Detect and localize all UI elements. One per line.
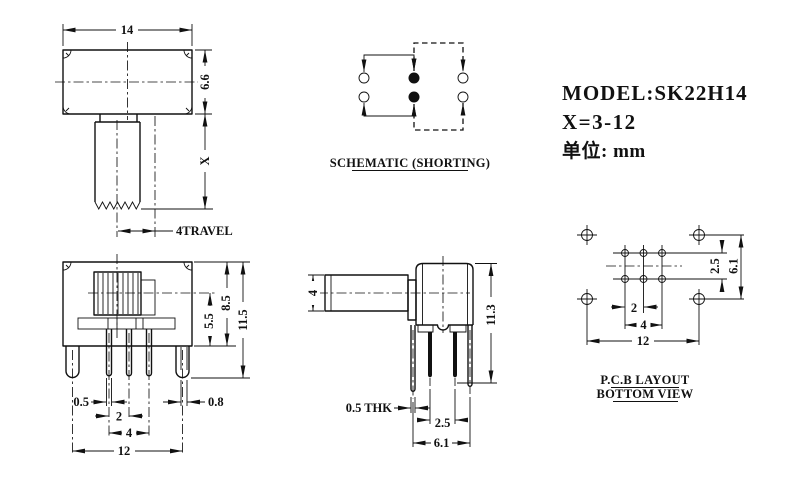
dim-label-travel: 4TRAVEL <box>176 224 233 238</box>
pcb-caption-line1: P.C.B LAYOUT <box>600 373 690 387</box>
dim-label-col-pitch: 2 <box>631 301 637 315</box>
dim-label-knob: 4 <box>306 289 320 296</box>
terminal-pin-side <box>428 332 432 377</box>
dim-label-width: 14 <box>121 23 134 37</box>
front-view: 5.5 8.5 11.5 0.5 0.8 2 4 12 <box>63 254 251 458</box>
pcb-layout-view: 2.5 6.1 2 4 12 P.C.B LAYOUT BOTTOM VIEW <box>577 225 744 402</box>
crosshair <box>577 289 597 345</box>
dim-label-total-h: 11.3 <box>484 304 498 325</box>
top-view: 14 6.6 X 4TRAVEL <box>55 23 233 238</box>
terminal-common <box>409 73 420 84</box>
bottom-tabs <box>418 325 466 332</box>
title-block: MODEL:SK22H14 X=3-12 单位: mm <box>562 81 748 162</box>
crosshair <box>577 225 597 245</box>
x-range: X=3-12 <box>562 110 637 134</box>
dim-label-depth: 6.6 <box>198 74 212 90</box>
dim-label-pin-pitch: 2 <box>116 410 122 424</box>
extension-line <box>181 380 187 406</box>
terminal-common <box>409 92 420 103</box>
contact-link-line <box>364 103 414 116</box>
unit-label: 单位: mm <box>562 139 646 162</box>
corner-mark <box>184 50 192 58</box>
actuator-stem <box>95 114 140 202</box>
knob <box>94 272 141 315</box>
corner-mark <box>63 106 71 114</box>
dim-label-pin-thk: 0.5 <box>73 395 89 409</box>
dim-label-lower-h: 5.5 <box>202 313 216 329</box>
technical-drawing: 14 6.6 X 4TRAVEL SCHEMATIC (SHORTING) MO… <box>0 0 800 480</box>
terminal-pin-side <box>453 332 457 377</box>
corner-mark <box>184 106 192 114</box>
mount-leg-inner <box>181 347 187 370</box>
dim-label-row-span: 6.1 <box>727 258 741 274</box>
corner-mark <box>63 262 71 270</box>
model-number: MODEL:SK22H14 <box>562 81 748 105</box>
break-line <box>95 202 140 209</box>
knob-step <box>141 280 155 315</box>
base-strip-ticks <box>108 318 143 329</box>
terminal-open <box>458 73 468 83</box>
drawing-canvas: 14 6.6 X 4TRAVEL SCHEMATIC (SHORTING) MO… <box>0 0 800 480</box>
dim-label-pin-span: 4 <box>126 426 133 440</box>
contact-link-line <box>364 55 414 72</box>
dim-label-stem: X <box>198 156 212 165</box>
knurl-lines <box>98 273 138 314</box>
alt-position-link <box>414 43 463 72</box>
schematic-caption: SCHEMATIC (SHORTING) <box>330 156 491 170</box>
dim-label-total-h: 11.5 <box>236 309 250 330</box>
dim-label-row-pitch: 2.5 <box>708 258 722 274</box>
dim-label-mount-span: 12 <box>118 444 131 458</box>
schematic-view: SCHEMATIC (SHORTING) <box>330 43 491 171</box>
pcb-caption-line2: BOTTOM VIEW <box>597 387 694 401</box>
dim-label-pin-span: 6.1 <box>434 436 450 450</box>
terminal-open <box>359 92 369 102</box>
terminal-open <box>458 92 468 102</box>
dim-label-bracket: 0.8 <box>208 395 224 409</box>
dim-label-pin-pitch: 2.5 <box>435 416 451 430</box>
flange <box>408 280 416 320</box>
switch-body-outline <box>63 262 192 346</box>
crosshair <box>689 225 744 245</box>
dim-label-thk: 0.5 THK <box>346 401 393 415</box>
body-bottom-edge <box>416 325 473 330</box>
terminal-open <box>359 73 369 83</box>
base-strip <box>78 318 175 329</box>
dim-label-body-h: 8.5 <box>219 295 233 311</box>
corner-mark <box>184 262 192 270</box>
alt-position-link <box>414 103 463 130</box>
dim-label-col-span: 4 <box>640 318 647 332</box>
side-view: 4 11.3 0.5 THK 2.5 6.1 <box>306 256 499 450</box>
crosshair <box>689 289 744 345</box>
body-side-outline <box>416 264 473 326</box>
dim-label-mount-span: 12 <box>637 334 650 348</box>
corner-mark <box>63 50 71 58</box>
body-inner-lines <box>423 264 468 325</box>
pin-hole-col-lines <box>625 245 662 329</box>
